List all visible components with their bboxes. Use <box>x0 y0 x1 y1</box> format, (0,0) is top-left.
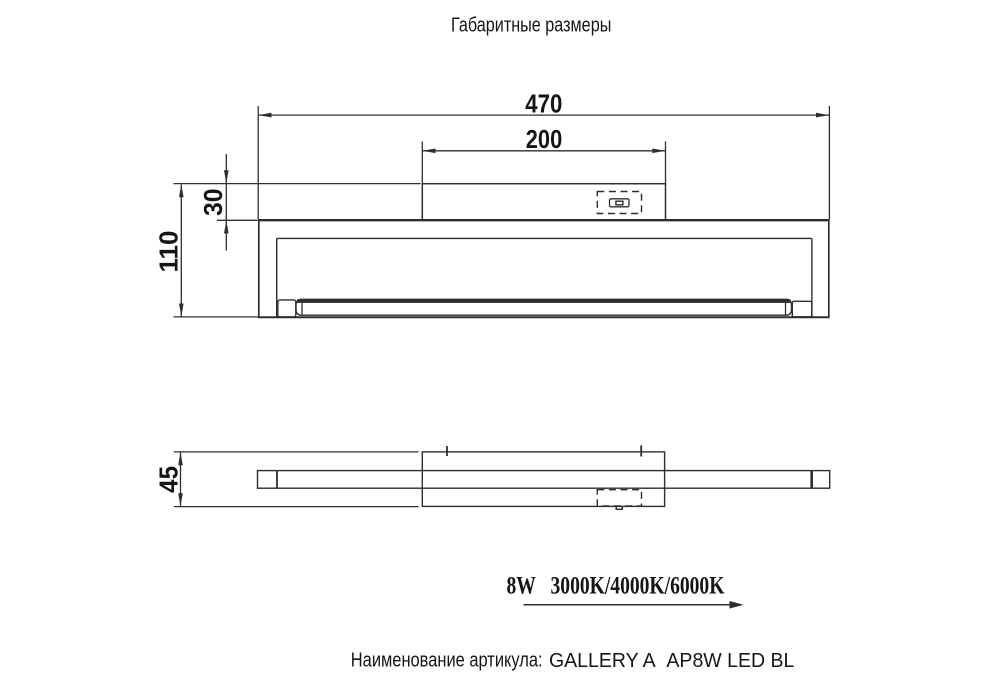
svg-text:8W 3000K/4000K/6000K: 8W 3000K/4000K/6000K <box>507 571 725 599</box>
svg-text:110: 110 <box>154 231 184 273</box>
svg-text:470: 470 <box>525 90 562 119</box>
svg-text:Габаритные размеры: Габаритные размеры <box>451 14 611 36</box>
svg-text:200: 200 <box>526 125 562 154</box>
svg-text:Наименование артикула:: Наименование артикула: <box>351 648 543 671</box>
svg-text:30: 30 <box>199 189 228 216</box>
svg-text:45: 45 <box>155 466 184 493</box>
svg-text:GALLERY A AP8W LED BL: GALLERY A AP8W LED BL <box>549 650 794 672</box>
